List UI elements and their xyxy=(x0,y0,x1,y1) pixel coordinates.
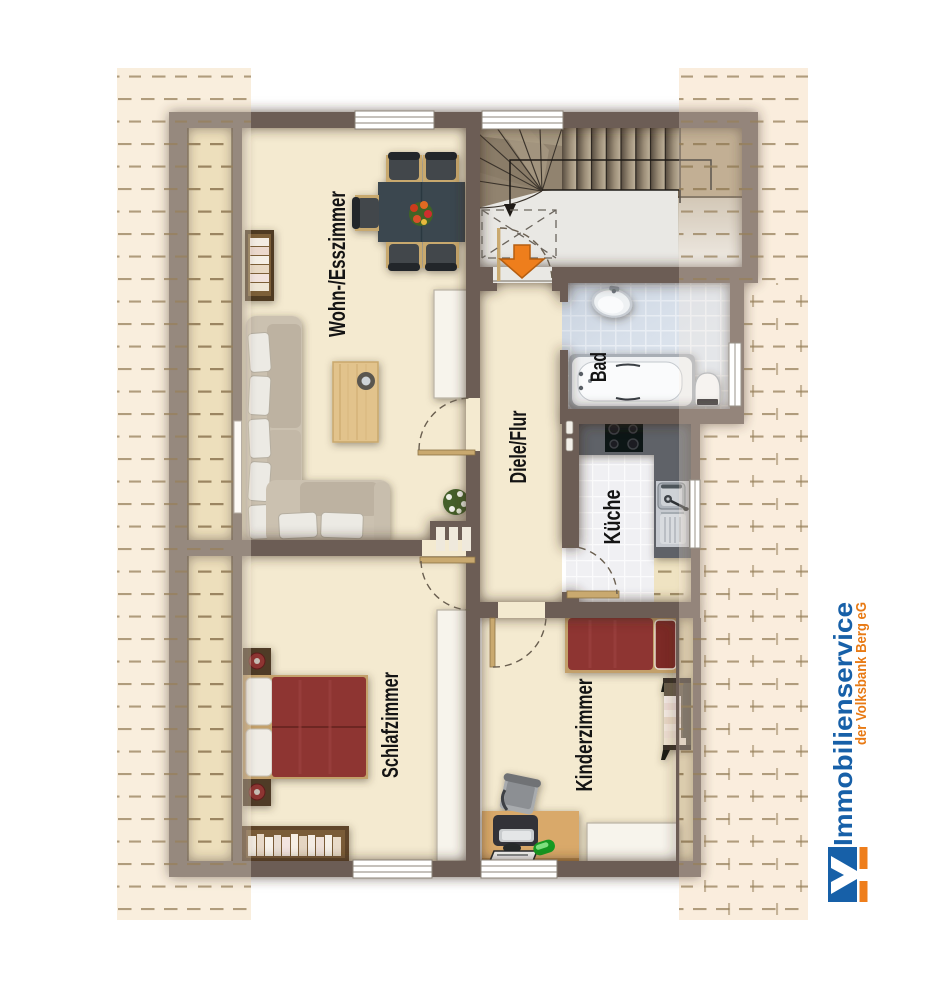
svg-text:der Volksbank Berg eG: der Volksbank Berg eG xyxy=(853,602,870,745)
svg-text:Diele/Flur: Diele/Flur xyxy=(505,410,531,483)
svg-text:Kinderzimmer: Kinderzimmer xyxy=(571,678,597,791)
svg-text:Wohn-/Esszimmer: Wohn-/Esszimmer xyxy=(324,191,350,337)
svg-text:Bad: Bad xyxy=(586,352,611,382)
svg-text:Schlafzimmer: Schlafzimmer xyxy=(377,672,403,778)
svg-text:Küche: Küche xyxy=(599,490,625,545)
